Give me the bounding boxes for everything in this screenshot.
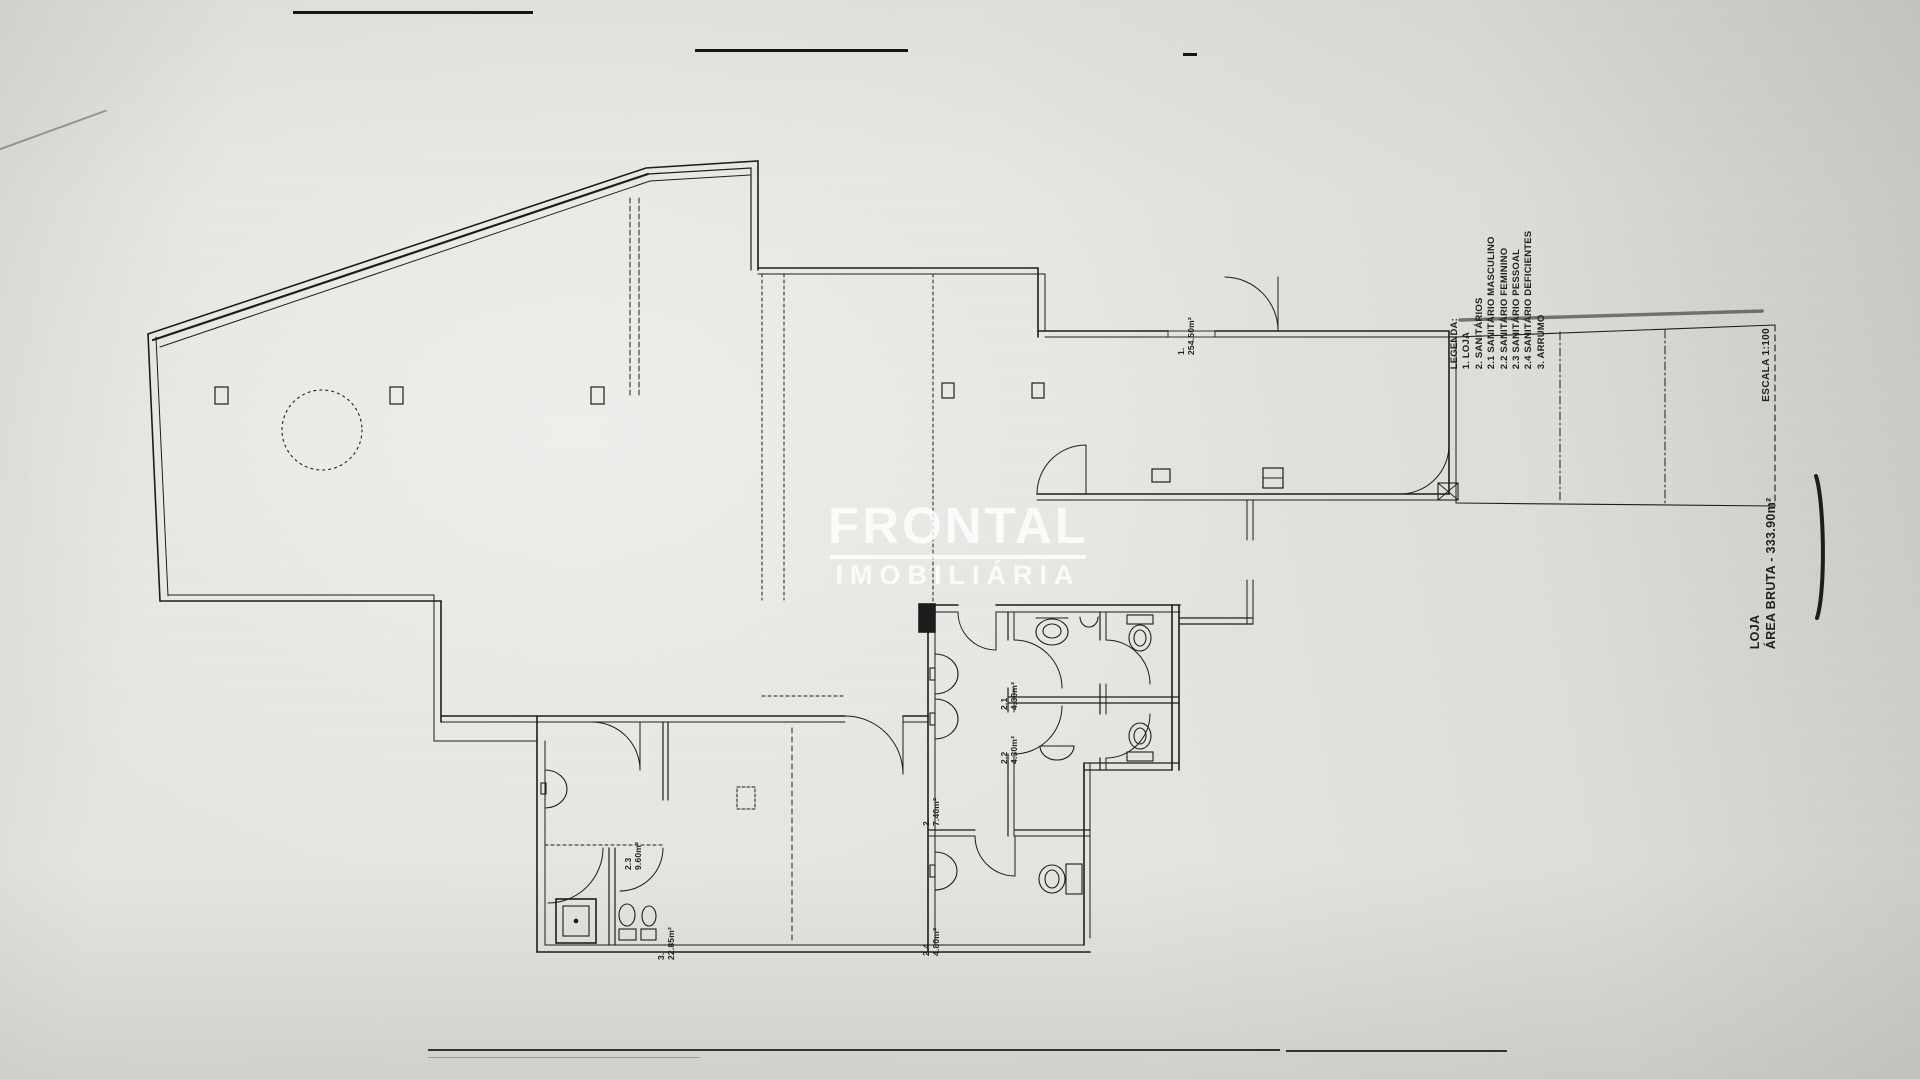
washbasin-icon [930, 852, 957, 890]
left-room-walls [148, 161, 758, 741]
column-icon [1152, 469, 1170, 482]
legend-item: 2.4 SANITÁRIO DEFICIENTES [1523, 231, 1535, 370]
urinal-icon [1080, 617, 1098, 627]
scale-note: ESCALA 1:100 [1761, 328, 1773, 402]
washbasin-icon [930, 654, 958, 694]
legend-item: 2. SANITÁRIOS [1474, 231, 1486, 370]
watermark-name: FRONTAL [828, 500, 1088, 551]
room-label-sanitario-deficientes: 2.4 4.80m² [921, 928, 941, 956]
shaft-icon [1438, 483, 1458, 500]
watermark-rule [830, 555, 1086, 559]
washbasin-icon [930, 699, 958, 739]
legend-item: 2.3 SANITÁRIO PESSOAL [1511, 231, 1523, 370]
room-label-loja: 1. 254.50m² [1176, 317, 1196, 355]
shower-icon [556, 899, 596, 943]
toilet-icon [619, 904, 636, 940]
column-icon [1032, 383, 1044, 398]
column-icon [215, 387, 228, 404]
layout-circle [282, 390, 362, 470]
watermark-tagline: IMOBILIÁRIA [828, 562, 1088, 589]
annex-walls [441, 716, 1090, 952]
column-icon [591, 387, 604, 404]
toilet-icon [1127, 615, 1153, 651]
gross-area-note: LOJA ÁREA BRUTA - 333.90m² [1748, 498, 1779, 650]
legend-item: 3. ARRUMO [1536, 231, 1548, 370]
legend-item: 2.2 SANITÁRIO FEMININO [1498, 231, 1510, 370]
washbasin-icon [1040, 746, 1074, 760]
room-label-sanitarios: 2. 7.40m² [921, 798, 941, 826]
column-icon [942, 383, 954, 398]
bidet-icon [641, 906, 656, 940]
gross-area-line1: LOJA [1748, 498, 1764, 650]
scanned-floorplan-page: FRONTAL IMOBILIÁRIA LEGENDA: 1. LOJA 2. … [0, 0, 1920, 1079]
sanitary-suite-walls [919, 604, 1180, 952]
sanitary-suite-fixtures [930, 615, 1153, 894]
washbasin-icon [1036, 618, 1068, 645]
legend-block: LEGENDA: 1. LOJA 2. SANITÁRIOS 2.1 SANIT… [1449, 231, 1548, 370]
columns-and-gridlines [215, 198, 1283, 696]
legend-item: 1. LOJA [1461, 231, 1473, 370]
area-brace [1816, 476, 1823, 618]
legend-title: LEGENDA: [1449, 231, 1461, 370]
legend-item: 2.1 SANITÁRIO MASCULINO [1486, 231, 1498, 370]
room-label-sanitario-feminino: 2.2 4.30m² [999, 736, 1019, 764]
agency-watermark: FRONTAL IMOBILIÁRIA [828, 500, 1088, 589]
column-icon [390, 387, 403, 404]
toilet-icon [1039, 864, 1082, 894]
gross-area-line2: ÁREA BRUTA - 333.90m² [1763, 498, 1779, 650]
room-label-arrumo: 3. 22.85m² [656, 927, 676, 960]
room-label-sanitario-masculino: 2.1 4.30m² [999, 682, 1019, 710]
room-label-sanitario-pessoal: 2.3 9.60m² [623, 842, 643, 870]
